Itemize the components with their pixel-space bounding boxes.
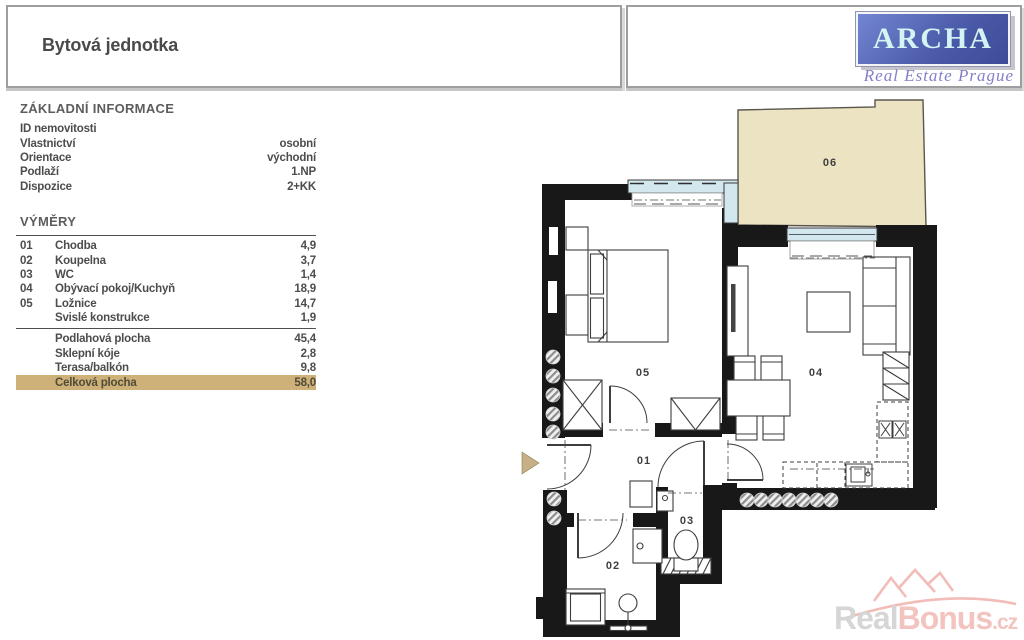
sofa bbox=[863, 257, 910, 355]
tv-cabinet bbox=[727, 266, 748, 356]
kitchen-sink bbox=[846, 464, 872, 486]
corridor-furniture bbox=[630, 481, 652, 507]
bathroom-fixtures bbox=[566, 529, 662, 631]
stove bbox=[879, 421, 906, 438]
wc-door bbox=[658, 441, 704, 487]
toilet bbox=[674, 530, 698, 560]
kitchen bbox=[783, 402, 908, 488]
room-label-02: 02 bbox=[606, 560, 620, 572]
room-label-06: 06 bbox=[823, 157, 837, 169]
room-label-03: 03 bbox=[680, 515, 694, 527]
washing-machine bbox=[566, 589, 605, 625]
nightstand bbox=[566, 227, 588, 250]
tv bbox=[731, 284, 736, 332]
room-label-05: 05 bbox=[636, 367, 650, 379]
room-label-04: 04 bbox=[809, 367, 823, 379]
bedroom-window bbox=[628, 180, 738, 223]
railing-posts bbox=[546, 350, 838, 525]
watermark-text: RealBonus.cz bbox=[834, 600, 1018, 636]
bedroom-door bbox=[610, 386, 647, 423]
dining-table bbox=[727, 380, 790, 416]
property-sheet-page: Bytová jednotka ARCHA Real Estate Prague… bbox=[0, 0, 1024, 640]
bedroom-furniture bbox=[563, 227, 720, 430]
dining-set bbox=[727, 356, 790, 440]
living-room-door bbox=[727, 444, 763, 480]
nightstand bbox=[566, 295, 588, 335]
room-label-01: 01 bbox=[637, 455, 651, 467]
floorplan: RealBonus.cz bbox=[0, 0, 1024, 640]
realbonus-watermark: RealBonus.cz bbox=[834, 570, 1018, 636]
entrance-door bbox=[547, 445, 591, 489]
bathroom-sink bbox=[610, 594, 647, 631]
coffee-table bbox=[807, 292, 850, 332]
wardrobe bbox=[671, 398, 720, 430]
living-room-window bbox=[787, 228, 877, 259]
cabinet bbox=[630, 481, 652, 507]
entrance-arrow-icon bbox=[522, 452, 539, 474]
shelf-unit bbox=[883, 352, 909, 400]
living-room-furniture bbox=[727, 257, 910, 440]
